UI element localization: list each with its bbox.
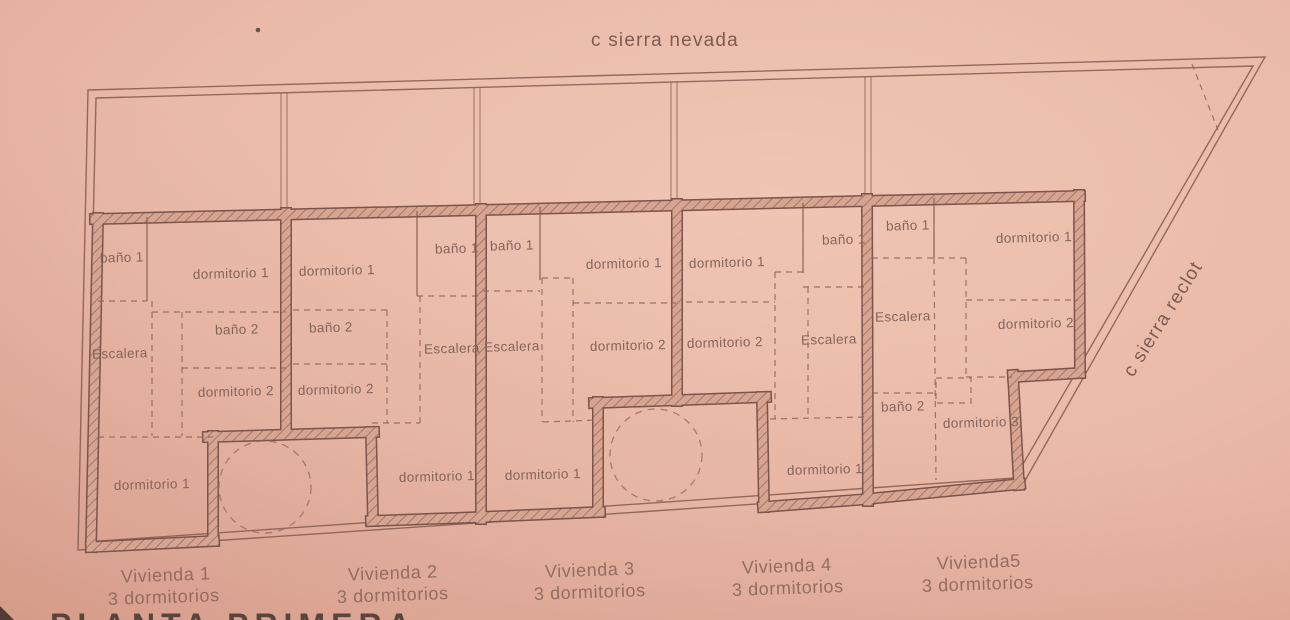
vivienda-5-caption: Vivienda5 3 dormitorios [922,551,1034,596]
vivienda-1-caption: Vivienda 1 3 dormitorios [108,563,220,609]
vivienda-caption-line2: 3 dormitorios [534,580,646,604]
photo-shading [0,0,1290,620]
room-label-v4-dorm1: dormitorio 1 [689,254,765,271]
room-label-v5-dorm3: dormitorio 3 [943,414,1019,431]
room-label-v5-escalera: Escalera [875,308,931,324]
room-label-v3-bano1: baño 1 [490,237,534,253]
room-label-v3-dorm1-bottom: dormitorio 1 [505,466,581,483]
room-label-v5-dorm2: dormitorio 2 [998,315,1074,332]
vivienda-2-caption: Vivienda 2 3 dormitorios [337,561,449,607]
room-label-v2-dorm2: dormitorio 2 [298,381,374,398]
room-label-v1-dorm1-bottom: dormitorio 1 [114,476,190,493]
room-label-v3-escalera: Escalera [484,338,540,354]
vivienda-4-caption: Vivienda 4 3 dormitorios [732,554,844,600]
vivienda-caption-line2: 3 dormitorios [337,583,449,607]
room-label-v2-dorm1-bottom: dormitorio 1 [399,468,475,485]
room-label-v4-escalera: Escalera [801,331,857,347]
vivienda-caption-line1: Vivienda 4 [742,554,832,577]
room-label-v1-bano1: baño 1 [100,249,144,265]
room-label-v1-escalera: Escalera [92,345,148,361]
room-label-v1-dorm1: dormitorio 1 [193,265,269,282]
room-label-v3-dorm2: dormitorio 2 [590,337,666,354]
vivienda-caption-line1: Vivienda 1 [121,563,211,586]
vivienda-3-caption: Vivienda 3 3 dormitorios [534,558,646,604]
room-label-v5-dorm1: dormitorio 1 [996,229,1072,246]
floor-plan: c sierra nevada c sierra reclot baño 1 d… [0,0,1290,620]
room-label-v2-dorm1: dormitorio 1 [299,262,375,279]
room-label-v4-bano1: baño 1 [822,231,866,247]
room-label-v4-dorm2: dormitorio 2 [687,334,763,351]
room-label-v1-dorm2: dormitorio 2 [198,383,274,400]
vivienda-caption-line2: 3 dormitorios [922,572,1034,596]
vivienda-caption-line2: 3 dormitorios [732,576,844,600]
vivienda-caption-line1: Vivienda 2 [348,561,438,584]
room-label-v5-bano2: baño 2 [881,398,925,414]
room-label-v2-bano2: baño 2 [309,319,353,335]
room-label-v1-bano2: baño 2 [215,321,259,337]
room-label-v4-dorm1-bottom: dormitorio 1 [787,461,863,478]
vivienda-caption-line2: 3 dormitorios [108,585,220,609]
photo-speck [256,28,261,33]
room-label-v2-bano1: baño 1 [435,240,479,256]
room-label-v2-escalera: Escalera [424,340,480,356]
plan-title-cropped: PLANTA PRIMERA [50,607,417,620]
street-label-top: c sierra nevada [591,30,739,51]
room-label-v5-bano1: baño 1 [886,217,930,233]
vivienda-caption-line1: Vivienda 3 [545,558,635,581]
vivienda-caption-line1: Vivienda5 [936,551,1021,574]
room-label-v3-dorm1: dormitorio 1 [586,255,662,272]
